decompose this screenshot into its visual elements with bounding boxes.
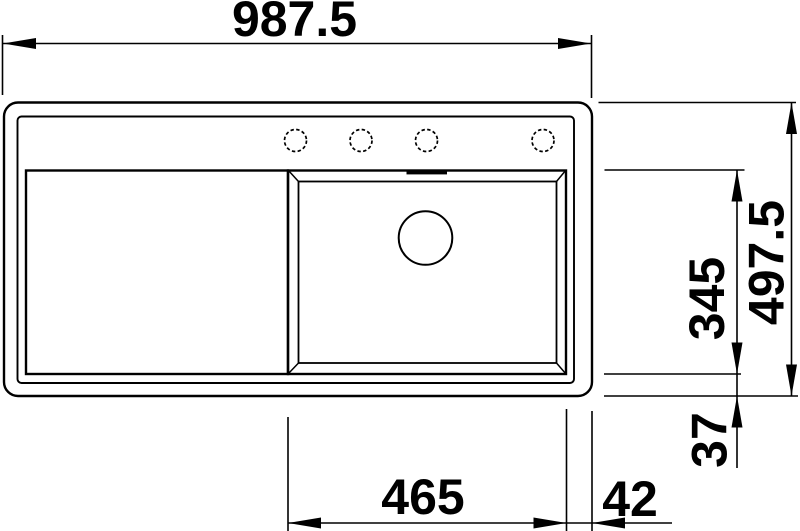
svg-text:465: 465 bbox=[381, 469, 464, 525]
svg-text:345: 345 bbox=[679, 257, 735, 340]
svg-text:42: 42 bbox=[602, 471, 658, 527]
svg-text:497.5: 497.5 bbox=[739, 200, 795, 325]
svg-text:37: 37 bbox=[682, 412, 738, 468]
svg-text:987.5: 987.5 bbox=[232, 0, 357, 47]
